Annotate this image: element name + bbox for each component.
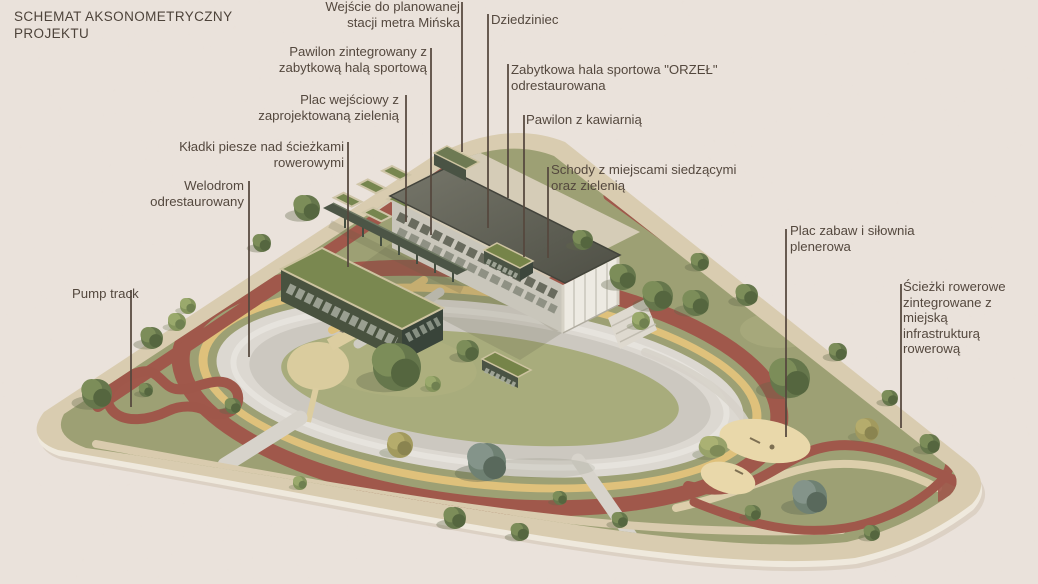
annotation-overlay: SCHEMAT AKSONOMETRYCZNY PROJEKTU Wejście… bbox=[0, 0, 1038, 584]
leader-line-metro bbox=[461, 2, 463, 152]
leader-line-pawilon-zintegrowany bbox=[430, 48, 432, 235]
label-bike-paths: Ścieżki rowerowe zintegrowane z miejską … bbox=[903, 279, 1038, 357]
leader-line-pump-track bbox=[130, 290, 132, 407]
leader-line-schody bbox=[547, 167, 549, 258]
axonometric-scheme-page: SCHEMAT AKSONOMETRYCZNY PROJEKTU Wejście… bbox=[0, 0, 1038, 584]
label-stairs-seating: Schody z miejscami siedzącymi oraz ziele… bbox=[551, 162, 736, 193]
leader-line-kladki bbox=[347, 142, 349, 267]
leader-line-dziedziniec bbox=[487, 14, 489, 228]
label-velodrome: Welodrom odrestaurowany bbox=[150, 178, 244, 209]
leader-line-zabytkowa-hala bbox=[507, 64, 509, 198]
label-footbridges: Kładki piesze nad ścieżkami rowerowymi bbox=[179, 139, 344, 170]
label-courtyard: Dziedziniec bbox=[491, 12, 558, 28]
label-entrance-plaza: Plac wejściowy z zaprojektowaną zielenią bbox=[258, 92, 399, 123]
label-metro-entrance: Wejście do planowanej stacji metra Mińsk… bbox=[325, 0, 460, 30]
label-cafe-pavilion: Pawilon z kawiarnią bbox=[526, 112, 642, 128]
label-pump-track: Pump track bbox=[72, 286, 139, 302]
label-historic-hall: Zabytkowa hala sportowa "ORZEŁ" odrestau… bbox=[511, 62, 718, 93]
leader-line-plac-wejsciowy bbox=[405, 95, 407, 222]
label-playground: Plac zabaw i siłownia plenerowa bbox=[790, 223, 915, 254]
label-integrated-pavilion: Pawilon zintegrowany z zabytkową halą sp… bbox=[279, 44, 427, 75]
leader-line-sciezki bbox=[900, 284, 902, 428]
leader-line-welodrom bbox=[248, 181, 250, 357]
page-title: SCHEMAT AKSONOMETRYCZNY PROJEKTU bbox=[14, 8, 232, 42]
leader-line-pawilon-kawiarnia bbox=[523, 115, 525, 257]
leader-line-plac-zabaw bbox=[785, 229, 787, 437]
